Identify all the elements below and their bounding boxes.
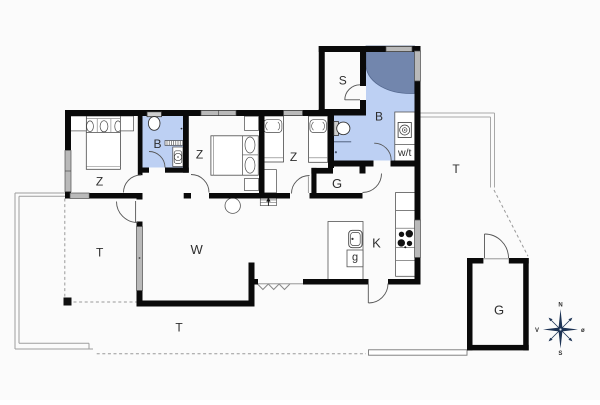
svg-text:w/t: w/t: [397, 147, 412, 159]
svg-text:N: N: [558, 303, 562, 309]
svg-text:T: T: [452, 162, 460, 176]
svg-text:V: V: [535, 328, 539, 334]
svg-text:G: G: [494, 303, 504, 318]
svg-text:T: T: [96, 246, 104, 260]
svg-text:Z: Z: [290, 150, 297, 164]
svg-text:T: T: [175, 321, 183, 335]
svg-text:G: G: [332, 176, 342, 191]
svg-text:Z: Z: [96, 175, 103, 189]
svg-text:W: W: [191, 242, 204, 257]
svg-text:ø: ø: [581, 328, 585, 334]
svg-text:S: S: [558, 351, 562, 357]
svg-text:K: K: [372, 236, 381, 251]
svg-text:B: B: [153, 137, 161, 151]
svg-text:Z: Z: [196, 147, 203, 161]
svg-text:S: S: [339, 74, 347, 88]
svg-text:g: g: [352, 252, 358, 264]
svg-text:B: B: [375, 110, 383, 124]
